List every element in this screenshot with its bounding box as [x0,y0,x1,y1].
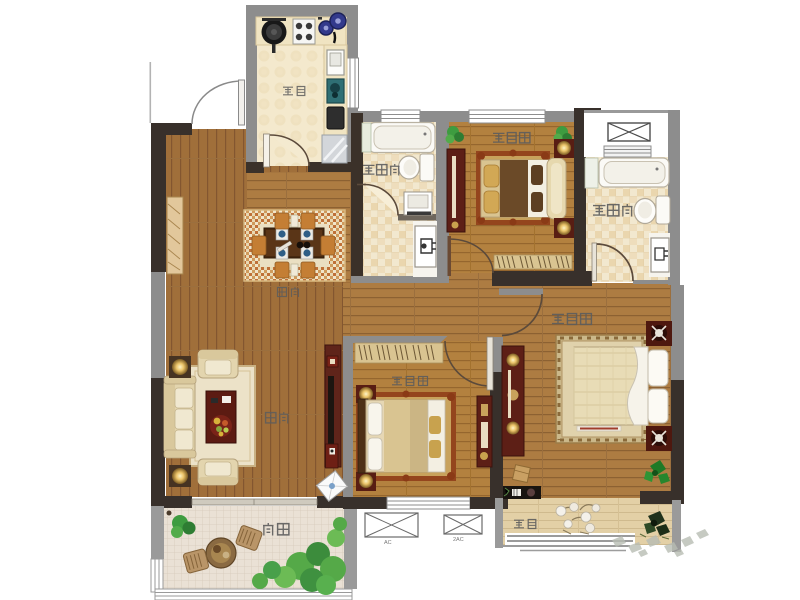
svg-text:AC: AC [384,540,392,546]
svg-text:2AC: 2AC [453,537,464,543]
